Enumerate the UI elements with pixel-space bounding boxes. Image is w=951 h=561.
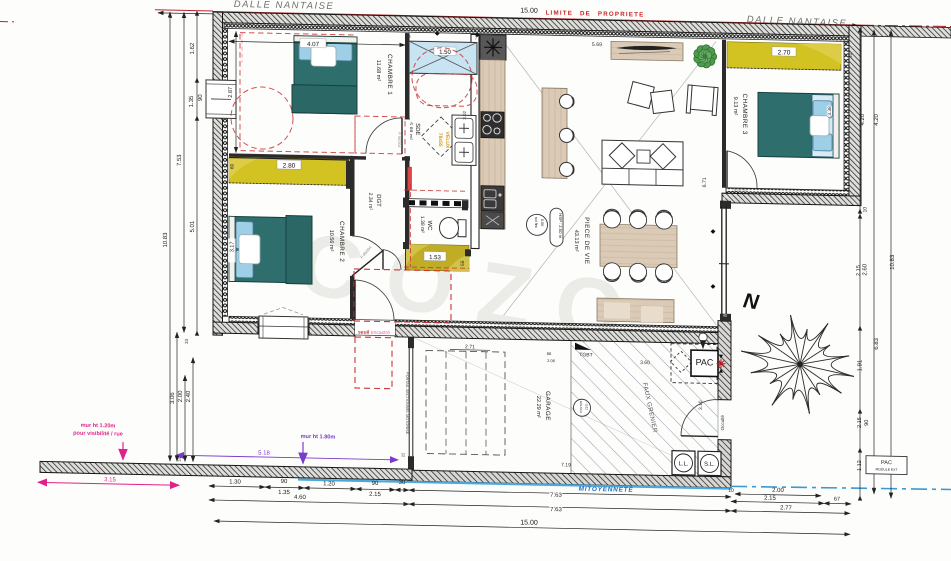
svg-text:pour visibilité / rue: pour visibilité / rue (73, 431, 123, 438)
svg-text:7.63: 7.63 (550, 507, 562, 513)
svg-text:5.01: 5.01 (190, 220, 196, 232)
svg-text:1.12: 1.12 (857, 460, 863, 471)
svg-text:2.87: 2.87 (228, 87, 234, 98)
svg-text:90: 90 (198, 94, 204, 101)
svg-text:0.00: 0.00 (540, 219, 544, 226)
svg-text:10: 10 (863, 207, 869, 213)
svg-text:2.00: 2.00 (772, 488, 784, 494)
svg-text:sol fini: sol fini (534, 217, 538, 228)
svg-text:PAC: PAC (696, 357, 714, 367)
svg-text:3.17: 3.17 (230, 241, 236, 252)
svg-text:CHAMBRE 3: CHAMBRE 3 (741, 93, 748, 134)
svg-text:VELUX: VELUX (444, 132, 450, 149)
svg-text:SDE: SDE (414, 123, 420, 135)
svg-text:10.83: 10.83 (163, 232, 169, 248)
svg-text:10: 10 (728, 488, 734, 494)
svg-text:4.07: 4.07 (307, 41, 320, 48)
svg-text:7.63: 7.63 (550, 493, 562, 499)
svg-text:HSP : 2.50 m: HSP : 2.50 m (558, 213, 563, 238)
svg-text:mur ht 1.80m: mur ht 1.80m (301, 434, 336, 441)
svg-text:2.15: 2.15 (369, 492, 381, 498)
svg-text:3.10: 3.10 (698, 400, 704, 410)
svg-text:DALLE NANTAISE: DALLE NANTAISE (234, 0, 335, 12)
svg-text:CHAMBRE 2: CHAMBRE 2 (338, 221, 345, 262)
svg-text:- 0.02: - 0.02 (585, 402, 589, 410)
svg-text:1.35: 1.35 (189, 95, 195, 107)
svg-text:7.19: 7.19 (561, 462, 571, 468)
svg-text:10.56 m²: 10.56 m² (328, 230, 334, 252)
svg-text:67: 67 (834, 497, 840, 503)
svg-text:2.15: 2.15 (857, 417, 863, 428)
svg-text:2.60: 2.60 (863, 263, 869, 275)
svg-text:90: 90 (372, 481, 379, 487)
svg-text:1.38 m²: 1.38 m² (419, 216, 425, 233)
svg-text:40: 40 (724, 194, 729, 199)
svg-text:33: 33 (184, 338, 189, 344)
svg-text:2.77: 2.77 (780, 505, 792, 511)
svg-text:22.29 m²: 22.29 m² (535, 396, 541, 418)
svg-text:P 80/204: P 80/204 (734, 189, 748, 193)
svg-text:5.69: 5.69 (592, 42, 602, 48)
svg-text:MODULE EXT: MODULE EXT (875, 467, 897, 471)
svg-text:3.02: 3.02 (462, 110, 467, 119)
svg-text:30: 30 (399, 480, 406, 486)
svg-text:GARAGE: GARAGE (544, 391, 551, 421)
svg-text:4.20: 4.20 (874, 113, 880, 125)
svg-text:40: 40 (848, 52, 853, 58)
svg-text:2.00: 2.00 (178, 390, 184, 402)
svg-text:10: 10 (405, 34, 411, 39)
svg-text:6.83: 6.83 (874, 337, 880, 349)
svg-text:3.38: 3.38 (827, 106, 833, 116)
svg-text:15.00: 15.00 (520, 519, 538, 526)
svg-text:55: 55 (460, 260, 466, 266)
svg-text:43.13 m²: 43.13 m² (573, 230, 579, 252)
svg-text:2.08: 2.08 (547, 358, 556, 363)
svg-text:60: 60 (230, 163, 236, 169)
svg-text:78x55: 78x55 (437, 133, 443, 147)
svg-text:PORTAIL SECTIONNEL MOTORISE: PORTAIL SECTIONNEL MOTORISE (405, 372, 409, 435)
svg-text:90: 90 (281, 479, 288, 485)
svg-text:11.68 m²: 11.68 m² (375, 60, 381, 82)
svg-text:4.60: 4.60 (294, 495, 306, 501)
svg-text:Occulté: Occulté (720, 415, 725, 431)
svg-text:4.20: 4.20 (860, 113, 866, 125)
svg-text:2.80: 2.80 (283, 162, 296, 169)
svg-text:P 90/204: P 90/204 (397, 132, 401, 147)
svg-text:2.15: 2.15 (764, 496, 776, 502)
svg-text:1.91: 1.91 (858, 359, 864, 371)
svg-text:2.70: 2.70 (778, 49, 791, 56)
svg-text:40: 40 (723, 313, 728, 318)
svg-text:1.30: 1.30 (229, 479, 241, 485)
svg-text:CHAMBRE 1: CHAMBRE 1 (386, 54, 393, 95)
svg-text:TGBT: TGBT (579, 352, 592, 358)
svg-text:DGT: DGT (375, 194, 381, 207)
svg-text:seuil encastré: seuil encastré (358, 330, 390, 337)
svg-text:1.62: 1.62 (190, 42, 196, 54)
svg-text:1.50: 1.50 (439, 50, 451, 56)
svg-text:3.15: 3.15 (104, 477, 116, 483)
svg-text:L.L.: L.L. (678, 461, 688, 467)
svg-text:WC: WC (426, 220, 432, 231)
svg-text:2.15: 2.15 (856, 265, 862, 276)
svg-text:3.06: 3.06 (170, 392, 176, 404)
svg-text:1.35: 1.35 (278, 490, 290, 496)
svg-text:15.00: 15.00 (520, 7, 538, 14)
svg-text:sols brut: sols brut (579, 401, 583, 413)
svg-text:10.83: 10.83 (890, 254, 896, 270)
svg-text:1.53: 1.53 (429, 255, 441, 261)
svg-text:2.34 m²: 2.34 m² (367, 192, 373, 210)
svg-text:PAC: PAC (881, 460, 892, 466)
svg-text:1.20: 1.20 (323, 481, 335, 487)
svg-text:90: 90 (864, 420, 870, 426)
svg-text:PIECE DE VIE: PIECE DE VIE (583, 217, 590, 264)
svg-text:5.18: 5.18 (258, 450, 270, 456)
svg-text:3.60: 3.60 (640, 360, 650, 366)
svg-text:mur ht 1.20m: mur ht 1.20m (81, 423, 116, 430)
svg-text:9.13 m²: 9.13 m² (732, 97, 738, 116)
svg-text:2.40: 2.40 (186, 390, 192, 402)
svg-text:6.71: 6.71 (702, 177, 708, 187)
svg-text:88: 88 (547, 351, 552, 356)
svg-text:S.L.: S.L. (704, 462, 715, 468)
svg-text:7.53: 7.53 (177, 154, 183, 166)
